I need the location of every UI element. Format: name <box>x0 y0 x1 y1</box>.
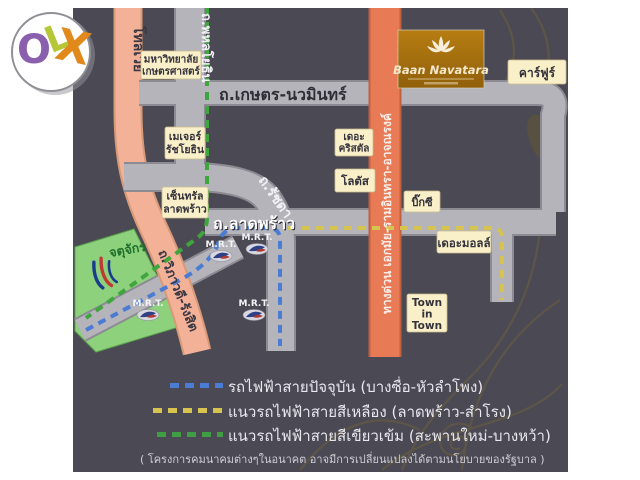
svg-text:M.R.T.: M.R.T. <box>241 233 272 243</box>
svg-text:M.R.T.: M.R.T. <box>238 299 269 309</box>
svg-text:เดอะ: เดอะ <box>343 132 364 143</box>
svg-text:บิ๊กซี: บิ๊กซี <box>411 194 433 209</box>
svg-text:M.R.T.: M.R.T. <box>132 299 163 309</box>
svg-text:เดอะมอลล์: เดอะมอลล์ <box>437 236 490 250</box>
svg-text:เซ็นทรัล: เซ็นทรัล <box>167 189 204 203</box>
landmark-major-ratchayothin: เมเจอร์ รัชโยธิน <box>165 127 205 159</box>
svg-text:Town: Town <box>412 320 442 332</box>
landmark-lotus: โลตัส <box>335 169 375 192</box>
svg-text:ลาดพร้าว: ลาดพร้าว <box>163 203 207 216</box>
legend-dash-blue <box>170 383 223 388</box>
olx-letter-x: X <box>52 23 94 73</box>
legend-label-yellow-line: แนวรถไฟฟ้าสายสีเหลือง (ลาดพร้าว-สำโรง) <box>228 400 512 424</box>
svg-text:M.R.T.: M.R.T. <box>205 240 236 250</box>
landmark-central-ladprao: เซ็นทรัล ลาดพร้าว <box>162 187 208 218</box>
olx-logo: O L X <box>11 12 91 92</box>
landmark-carrefour: คาร์ฟูร์ <box>508 60 566 84</box>
svg-text:มหาวิทยาลัย: มหาวิทยาลัย <box>144 54 199 66</box>
landmark-big-c: บิ๊กซี <box>404 191 440 212</box>
landmark-town-in-town: Town in Town <box>407 294 447 332</box>
developer-badge: Baan Navatara <box>393 30 489 88</box>
svg-text:เกษตรศาสตร์: เกษตรศาสตร์ <box>142 66 200 78</box>
badge-name: Baan Navatara <box>393 63 489 77</box>
legend-dash-yellow <box>153 408 223 413</box>
road-label-expressway: ทางด่วน เอกมัย-รามอินทรา-อาจณรงค์ <box>380 113 394 314</box>
svg-text:คาร์ฟูร์: คาร์ฟูร์ <box>519 66 556 81</box>
landmark-the-mall: เดอะมอลล์ <box>437 231 491 253</box>
mrt-station: M.R.T. <box>238 299 269 321</box>
legend-label-green-line: แนวรถไฟฟ้าสายสีเขียวเข้ม (สะพานใหม่-บางห… <box>228 424 551 448</box>
svg-text:in: in <box>421 309 432 321</box>
svg-text:คริสตัล: คริสตัล <box>339 143 370 155</box>
svg-text:โลตัส: โลตัส <box>340 173 370 188</box>
svg-text:เมเจอร์: เมเจอร์ <box>169 130 202 143</box>
landmark-kasetsart-university: มหาวิทยาลัย เกษตรศาสตร์ <box>141 51 201 79</box>
road-label-kaset-nawamin: ถ.เกษตร-นวมินทร์ <box>219 85 347 104</box>
svg-text:Town: Town <box>412 297 442 309</box>
listing-image: โทลเวย์ ถ.พหลโยธิน ถ.เกษตร-นวมินทร์ ถ.รั… <box>0 0 640 480</box>
landmark-the-crystal: เดอะ คริสตัล <box>335 129 373 156</box>
legend-note: ( โครงการคมนาคมต่างๆในอนาคต อาจมีการเปลี… <box>140 450 526 468</box>
legend-label-current-line: รถไฟฟ้าสายปัจจุบัน (บางซื่อ-หัวลำโพง) <box>228 375 483 399</box>
svg-text:รัชโยธิน: รัชโยธิน <box>166 143 205 156</box>
road-label-ladprao: ถ.ลาดพร้าว <box>213 214 295 233</box>
legend-dash-green <box>157 432 223 437</box>
